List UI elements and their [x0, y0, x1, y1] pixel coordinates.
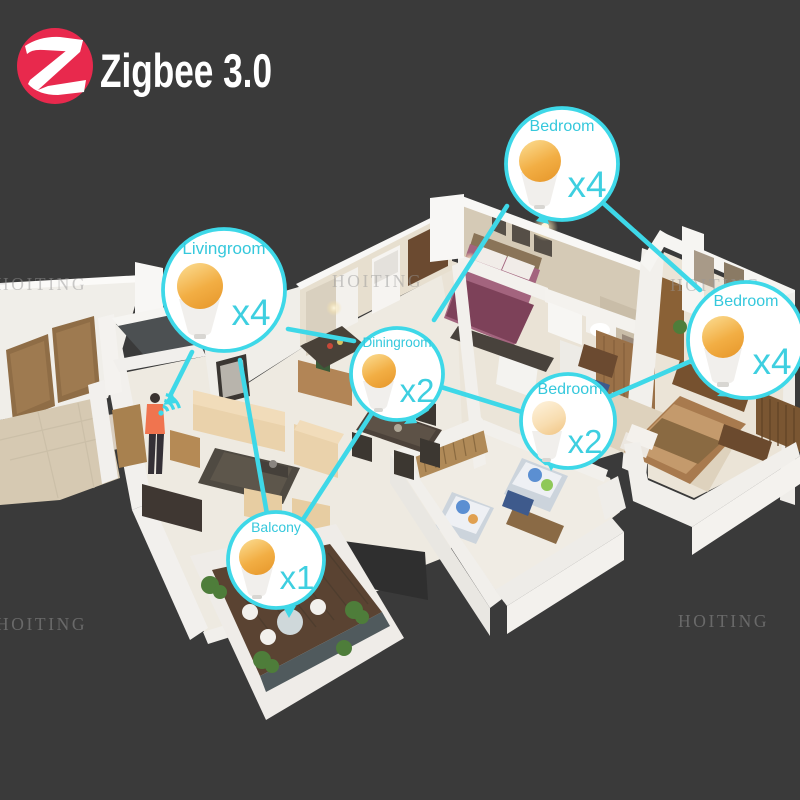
svg-text:x1: x1 [280, 559, 315, 596]
svg-text:HOITING: HOITING [678, 611, 769, 631]
svg-text:Balcony: Balcony [251, 519, 301, 535]
svg-text:Zigbee 3.0: Zigbee 3.0 [100, 44, 272, 97]
svg-text:Livingroom: Livingroom [182, 239, 265, 258]
svg-text:Diningroom: Diningroom [362, 335, 431, 350]
svg-text:x2: x2 [568, 423, 603, 460]
svg-text:Bedroom: Bedroom [714, 293, 779, 310]
svg-text:HOITING: HOITING [332, 271, 423, 291]
svg-text:x2: x2 [400, 372, 435, 409]
svg-text:x4: x4 [752, 341, 791, 382]
svg-text:x4: x4 [567, 164, 606, 205]
svg-text:x4: x4 [231, 292, 270, 333]
svg-text:HOITING: HOITING [0, 614, 87, 634]
svg-text:Bedroom: Bedroom [530, 118, 595, 135]
svg-text:HOITING: HOITING [0, 274, 87, 294]
svg-text:Bedroom: Bedroom [538, 381, 603, 398]
